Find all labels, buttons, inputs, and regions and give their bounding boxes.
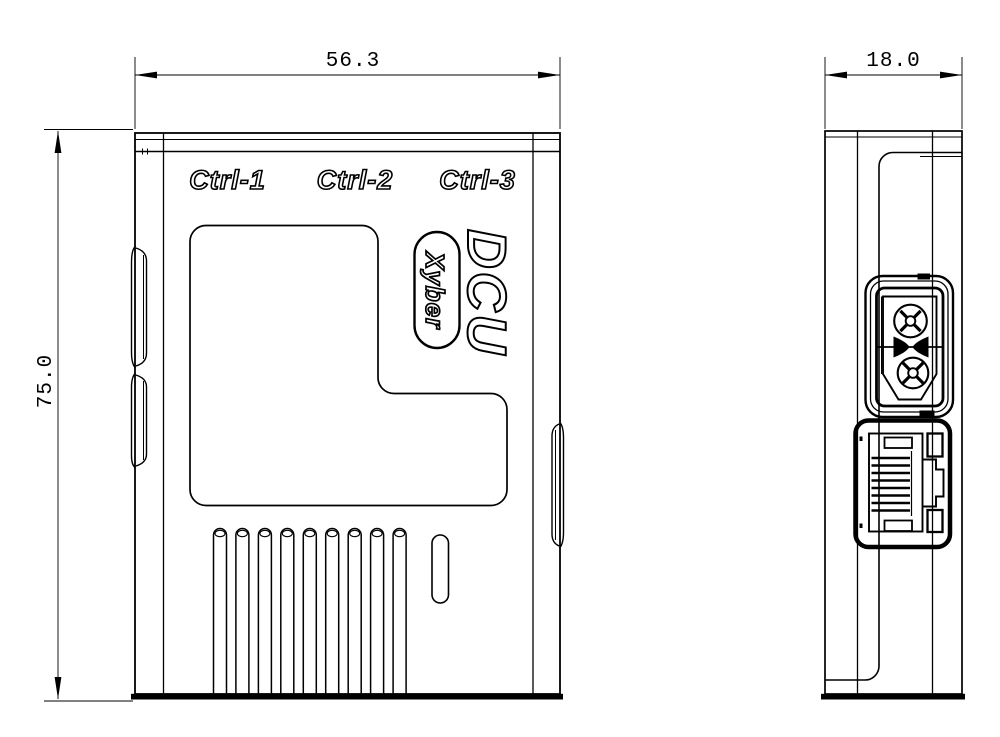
brand-badge: Xyber: [415, 232, 460, 348]
vent-slot: [348, 529, 361, 695]
rj45-detail-top: [885, 438, 913, 449]
rj45-tab-top: [928, 434, 943, 457]
power-housing-tab-top: [918, 274, 931, 280]
side-view: [821, 131, 965, 700]
vent-slot: [281, 529, 294, 695]
arrowhead-right: [538, 72, 560, 79]
rj45-housing-tick-bottom: [860, 524, 863, 529]
left-clip-lower: [132, 373, 147, 468]
pill-slot: [432, 535, 449, 603]
arrowhead-left: [135, 72, 157, 79]
extension-lines: [44, 130, 133, 702]
dimension-side-depth: 18.0: [825, 50, 962, 129]
arrowhead-left: [825, 72, 847, 79]
drawing-sheet: Ctrl-1 Ctrl-2 Ctrl-3 DCU Xyber: [0, 0, 1000, 737]
arrowhead-right: [940, 72, 962, 79]
rj45-tab-bottom: [928, 510, 943, 532]
ctrl-2-label: Ctrl-2: [317, 165, 394, 195]
front-width-value: 56.3: [326, 50, 380, 73]
rj45-pin-comb: [872, 451, 912, 516]
vent-slot: [303, 529, 316, 695]
brand-badge-text: Xyber: [420, 250, 450, 330]
vent-slot: [393, 529, 406, 695]
rj45-housing-tick-top: [860, 437, 863, 442]
right-clip: [552, 422, 564, 548]
arrowhead-bottom: [55, 677, 62, 699]
ctrl-3-label: Ctrl-3: [439, 165, 516, 195]
side-depth-value: 18.0: [866, 50, 920, 73]
vent-slot: [326, 529, 339, 695]
power-terminal-bottom-icon: [898, 358, 929, 389]
vent-slot: [214, 529, 227, 695]
power-terminal-top-icon: [894, 305, 927, 338]
arrowhead-top: [55, 131, 62, 153]
rj45-detail-bottom: [885, 521, 913, 532]
vent-slots: [214, 529, 407, 695]
left-clip-upper: [132, 246, 147, 368]
ctrl-1-label: Ctrl-1: [189, 165, 266, 195]
dimension-front-width: 56.3: [135, 50, 560, 129]
bottom-edge-thick: [131, 694, 563, 700]
power-housing-tab-bottom: [920, 411, 935, 417]
front-view: Ctrl-1 Ctrl-2 Ctrl-3 DCU Xyber: [131, 133, 564, 700]
technical-drawing: Ctrl-1 Ctrl-2 Ctrl-3 DCU Xyber: [0, 0, 1000, 737]
ethernet-connector: [856, 421, 951, 548]
dimension-front-height: 75.0: [35, 130, 133, 702]
vent-slot: [371, 529, 384, 695]
vent-slot: [236, 529, 249, 695]
vent-slot: [258, 529, 271, 695]
side-bottom-edge-thick: [821, 694, 965, 700]
front-height-value: 75.0: [35, 354, 58, 408]
model-logo-text: DCU: [456, 229, 518, 357]
